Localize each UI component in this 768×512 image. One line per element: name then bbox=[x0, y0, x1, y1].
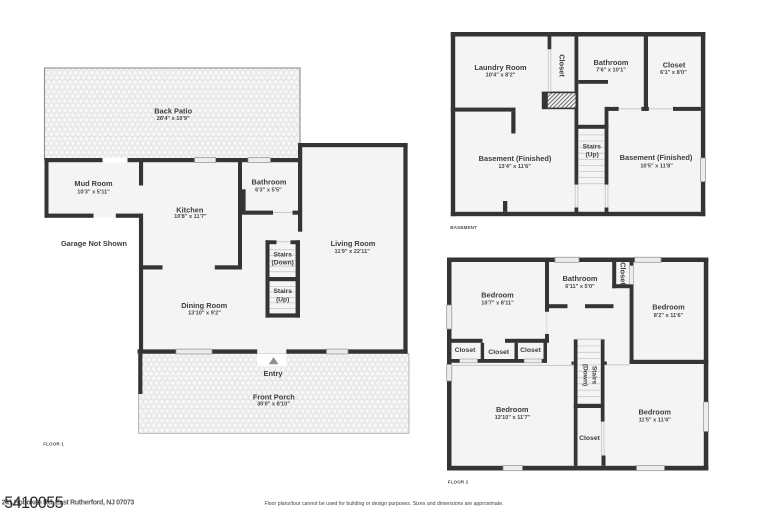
svg-text:Garage Not Shown: Garage Not Shown bbox=[61, 239, 128, 248]
svg-text:30'0" x 8'10": 30'0" x 8'10" bbox=[257, 402, 290, 408]
svg-text:Back Patio: Back Patio bbox=[154, 107, 192, 116]
svg-text:Front Porch: Front Porch bbox=[253, 393, 295, 402]
svg-text:Bathroom: Bathroom bbox=[594, 58, 629, 67]
svg-text:10'4" x 8'2": 10'4" x 8'2" bbox=[486, 72, 516, 78]
svg-text:13'4" x 11'6": 13'4" x 11'6" bbox=[498, 164, 531, 170]
svg-text:Stairs: Stairs bbox=[274, 252, 293, 259]
svg-text:Stairs: Stairs bbox=[591, 366, 598, 385]
svg-text:Laundry Room: Laundry Room bbox=[474, 63, 527, 72]
svg-text:Stairs: Stairs bbox=[583, 143, 602, 150]
svg-text:FLOOR 1: FLOOR 1 bbox=[43, 442, 64, 447]
svg-text:Closet: Closet bbox=[520, 347, 542, 354]
svg-text:Bedroom: Bedroom bbox=[652, 303, 685, 312]
svg-text:BASEMENT: BASEMENT bbox=[450, 225, 477, 230]
svg-text:FLOOR 2: FLOOR 2 bbox=[448, 479, 469, 484]
svg-text:Basement (Finished): Basement (Finished) bbox=[620, 153, 693, 162]
svg-text:Stairs: Stairs bbox=[274, 288, 293, 295]
svg-text:Entry: Entry bbox=[264, 369, 284, 378]
svg-text:(Up): (Up) bbox=[586, 152, 599, 159]
svg-text:Bedroom: Bedroom bbox=[496, 405, 529, 414]
svg-text:Closet: Closet bbox=[618, 262, 627, 285]
svg-text:Mud Room: Mud Room bbox=[74, 179, 113, 188]
svg-text:6'3" x 5'5": 6'3" x 5'5" bbox=[255, 188, 282, 194]
svg-text:Basement (Finished): Basement (Finished) bbox=[479, 154, 552, 163]
svg-text:Kitchen: Kitchen bbox=[176, 205, 204, 214]
svg-text:10'5" x 11'8": 10'5" x 11'8" bbox=[640, 164, 673, 170]
svg-text:10'3" x 5'11": 10'3" x 5'11" bbox=[77, 190, 110, 196]
svg-text:8'2" x 11'6": 8'2" x 11'6" bbox=[654, 313, 684, 319]
svg-text:Closet: Closet bbox=[455, 347, 477, 354]
svg-text:Bedroom: Bedroom bbox=[638, 408, 671, 417]
svg-text:(Down): (Down) bbox=[272, 260, 294, 267]
svg-text:13'10" x 11'7": 13'10" x 11'7" bbox=[495, 415, 531, 421]
svg-text:Closet: Closet bbox=[663, 61, 686, 70]
svg-text:6'11" x 5'0": 6'11" x 5'0" bbox=[565, 284, 595, 290]
svg-text:Bathroom: Bathroom bbox=[563, 274, 598, 283]
svg-text:28'4" x 10'9": 28'4" x 10'9" bbox=[157, 116, 190, 122]
svg-text:Floor plans/tour cannot be use: Floor plans/tour cannot be used for buil… bbox=[264, 501, 503, 507]
svg-text:Dining Room: Dining Room bbox=[181, 301, 227, 310]
svg-text:(Up): (Up) bbox=[276, 296, 289, 303]
svg-text:Bedroom: Bedroom bbox=[481, 291, 514, 300]
svg-text:Living Room: Living Room bbox=[331, 239, 376, 248]
svg-text:(Down): (Down) bbox=[581, 364, 588, 386]
svg-text:11'9" x 22'11": 11'9" x 22'11" bbox=[335, 249, 371, 255]
svg-text:6'1" x 8'0": 6'1" x 8'0" bbox=[660, 70, 687, 76]
svg-text:10'8" x 11'7": 10'8" x 11'7" bbox=[174, 214, 207, 220]
svg-text:10'7" x 8'11": 10'7" x 8'11" bbox=[481, 301, 514, 307]
svg-text:11'5" x 11'4": 11'5" x 11'4" bbox=[639, 418, 672, 424]
svg-text:5410055: 5410055 bbox=[4, 494, 63, 512]
svg-text:Closet: Closet bbox=[557, 54, 566, 77]
svg-text:Closet: Closet bbox=[579, 435, 601, 442]
svg-text:13'10" x 9'2": 13'10" x 9'2" bbox=[188, 310, 221, 316]
svg-text:7'6" x 10'1": 7'6" x 10'1" bbox=[596, 67, 626, 73]
svg-text:Closet: Closet bbox=[488, 349, 510, 356]
svg-text:Bathroom: Bathroom bbox=[252, 177, 287, 186]
